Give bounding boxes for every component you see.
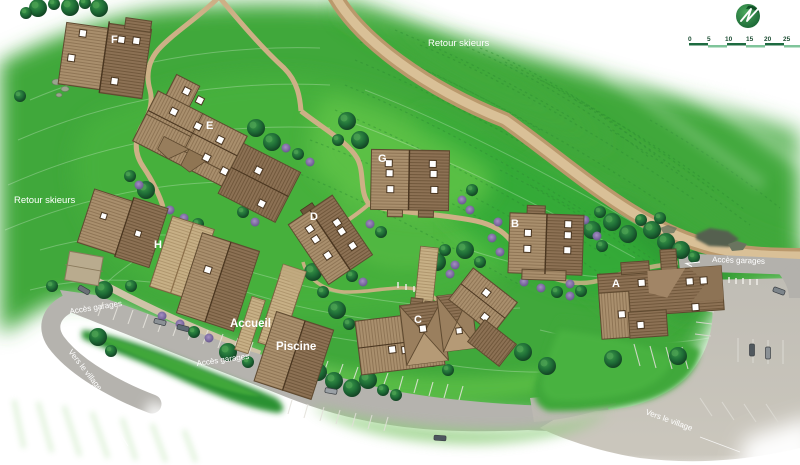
svg-text:5: 5 (707, 36, 711, 43)
svg-text:Retour skieurs: Retour skieurs (428, 38, 489, 49)
svg-text:H: H (154, 239, 162, 251)
svg-text:B: B (511, 218, 519, 230)
svg-text:15: 15 (746, 36, 754, 43)
svg-text:D: D (310, 211, 318, 223)
svg-text:G: G (378, 153, 387, 165)
svg-text:Accueil: Accueil (230, 318, 271, 330)
svg-text:25: 25 (783, 36, 791, 43)
svg-text:Piscine: Piscine (276, 341, 316, 353)
svg-text:C: C (414, 314, 422, 326)
svg-text:10: 10 (725, 36, 733, 43)
svg-text:20: 20 (764, 36, 772, 43)
svg-text:Accès garages: Accès garages (712, 255, 765, 266)
svg-text:0: 0 (688, 36, 692, 43)
svg-text:Retour skieurs: Retour skieurs (14, 195, 75, 206)
svg-text:arrivée skieurs: arrivée skieurs (3, 389, 65, 400)
svg-text:E: E (206, 120, 213, 132)
svg-text:F: F (111, 34, 118, 46)
svg-text:A: A (612, 278, 620, 290)
svg-text:Plateforme: Plateforme (3, 377, 49, 388)
